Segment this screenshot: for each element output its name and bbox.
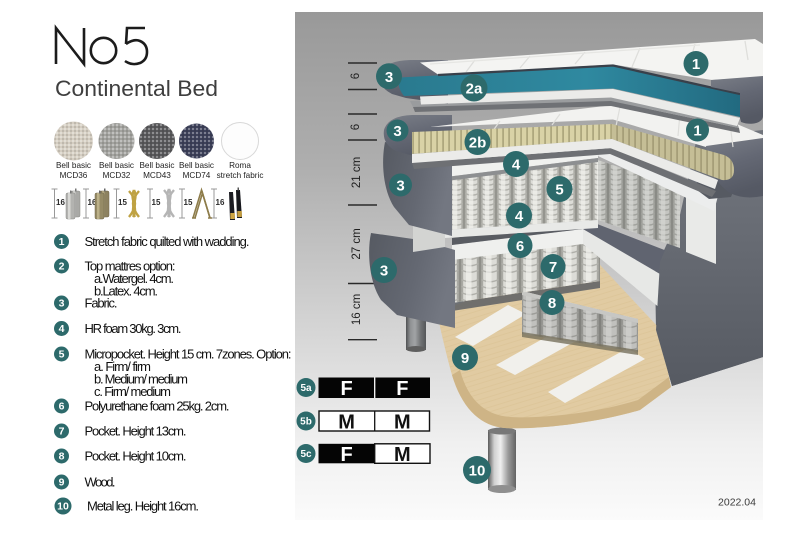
- svg-text:Bell basic: Bell basic: [99, 161, 134, 170]
- svg-text:15: 15: [152, 198, 161, 207]
- svg-text:10: 10: [469, 463, 486, 480]
- svg-text:5a: 5a: [300, 383, 312, 394]
- svg-text:F: F: [340, 378, 352, 400]
- svg-text:MCD36: MCD36: [60, 171, 88, 180]
- svg-text:6: 6: [350, 124, 362, 130]
- svg-text:HR foam 30kg. 3cm.: HR foam 30kg. 3cm.: [85, 321, 182, 336]
- svg-text:4: 4: [59, 323, 65, 335]
- svg-text:3: 3: [59, 298, 65, 310]
- svg-text:Metal leg. Height 16cm.: Metal leg. Height 16cm.: [87, 499, 199, 514]
- svg-text:7: 7: [59, 426, 65, 438]
- svg-text:MCD74: MCD74: [183, 171, 211, 180]
- svg-text:21 cm: 21 cm: [351, 157, 363, 188]
- svg-text:stretch fabric: stretch fabric: [217, 171, 264, 180]
- svg-text:Stretch fabric quilted with wa: Stretch fabric quilted with wadding.: [85, 234, 250, 249]
- svg-text:Bell basic: Bell basic: [139, 161, 174, 170]
- svg-text:F: F: [340, 444, 352, 466]
- svg-text:Roma: Roma: [229, 161, 251, 170]
- svg-text:9: 9: [59, 477, 65, 489]
- svg-text:16 cm: 16 cm: [351, 294, 363, 325]
- svg-text:4: 4: [512, 157, 521, 174]
- svg-text:4: 4: [515, 208, 524, 225]
- svg-text:15: 15: [184, 198, 193, 207]
- svg-text:1: 1: [59, 236, 65, 248]
- svg-text:Bell basic: Bell basic: [179, 161, 214, 170]
- svg-text:MCD43: MCD43: [143, 171, 171, 180]
- svg-text:1: 1: [693, 123, 701, 140]
- svg-text:2a: 2a: [466, 81, 483, 98]
- svg-text:3: 3: [385, 69, 393, 86]
- svg-text:5b: 5b: [300, 417, 312, 428]
- svg-text:2022.04: 2022.04: [718, 497, 756, 509]
- svg-text:M: M: [394, 444, 411, 466]
- svg-text:M: M: [338, 412, 355, 434]
- svg-text:3: 3: [396, 178, 404, 195]
- svg-text:Continental Bed: Continental Bed: [55, 76, 218, 101]
- svg-text:10: 10: [57, 501, 69, 513]
- svg-text:M: M: [394, 412, 411, 434]
- svg-text:3: 3: [380, 263, 388, 280]
- svg-text:5c: 5c: [300, 449, 312, 460]
- svg-text:6: 6: [350, 73, 362, 79]
- svg-text:8: 8: [59, 451, 65, 463]
- svg-text:16: 16: [216, 198, 225, 207]
- svg-text:5: 5: [555, 182, 563, 199]
- svg-text:Polyurethane foam 25kg. 2cm.: Polyurethane foam 25kg. 2cm.: [85, 399, 230, 414]
- svg-text:Wood.: Wood.: [85, 475, 116, 490]
- svg-text:Pocket. Height 13cm.: Pocket. Height 13cm.: [85, 424, 187, 439]
- svg-text:8: 8: [548, 295, 556, 312]
- svg-text:MCD32: MCD32: [103, 171, 131, 180]
- svg-text:16: 16: [56, 198, 65, 207]
- svg-text:Pocket. Height 10cm.: Pocket. Height 10cm.: [85, 449, 187, 464]
- svg-text:6: 6: [516, 238, 524, 255]
- svg-text:2: 2: [59, 261, 65, 273]
- svg-text:15: 15: [118, 198, 127, 207]
- svg-text:27 cm: 27 cm: [351, 228, 363, 259]
- svg-text:c. Firm/ medium: c. Firm/ medium: [94, 384, 171, 399]
- svg-text:7: 7: [549, 259, 557, 276]
- svg-text:2b: 2b: [469, 135, 487, 152]
- svg-text:5: 5: [59, 349, 65, 361]
- svg-text:3: 3: [393, 123, 401, 140]
- svg-text:F: F: [396, 378, 408, 400]
- svg-text:Bell basic: Bell basic: [56, 161, 91, 170]
- svg-text:9: 9: [461, 350, 469, 367]
- svg-text:1: 1: [692, 56, 700, 73]
- svg-text:6: 6: [59, 401, 65, 413]
- svg-text:Fabric.: Fabric.: [85, 296, 118, 311]
